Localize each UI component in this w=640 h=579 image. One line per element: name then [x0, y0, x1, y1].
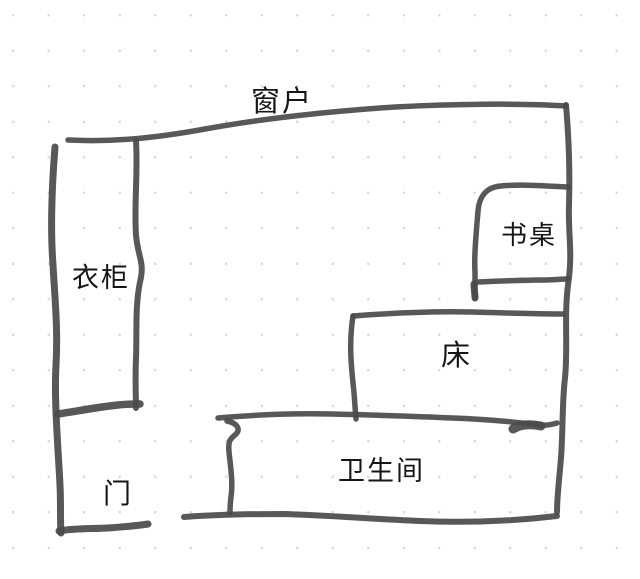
label-bed: 床 — [441, 341, 472, 370]
label-door: 门 — [103, 480, 133, 508]
label-bathroom: 卫生间 — [338, 458, 425, 485]
bathroom-left-line — [227, 421, 238, 513]
label-wardrobe: 衣柜 — [72, 265, 130, 292]
window-wall-line — [68, 104, 566, 140]
label-window: 窗户 — [251, 87, 313, 116]
floor-plan-sketch: 窗户 衣柜 书桌 床 卫生间 门 — [0, 0, 640, 579]
right-wall-line — [557, 105, 570, 512]
bottom-wall-right-line — [184, 514, 557, 522]
bottom-wall-left-line — [59, 524, 148, 531]
bathroom-top-line — [218, 414, 557, 429]
left-wall-line — [52, 147, 61, 533]
label-desk: 书桌 — [501, 223, 557, 249]
